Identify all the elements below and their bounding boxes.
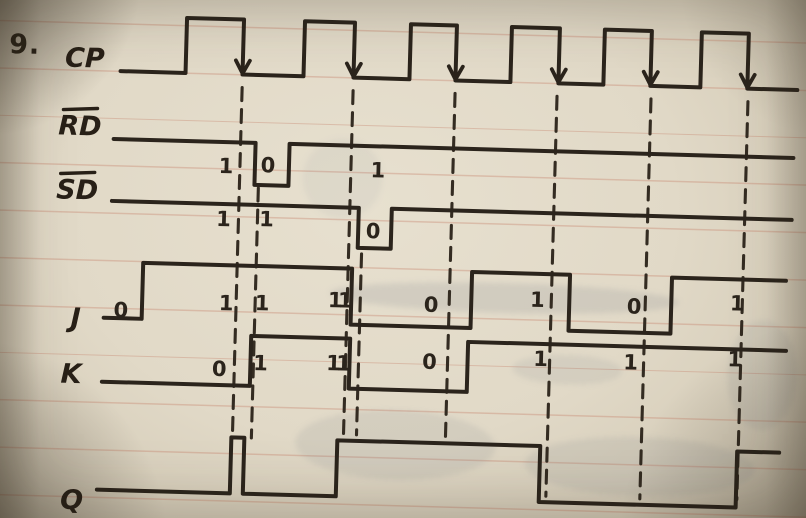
- clock-edge-guide-line: [546, 96, 557, 496]
- notebook-paper: 9. CPRDSDJKQ10111001111010101110111: [0, 0, 806, 518]
- logic-value-digit-rd: 1: [218, 154, 233, 178]
- logic-value-digit-j: 1: [218, 291, 233, 315]
- logic-value-digit-sd: 0: [366, 219, 381, 243]
- clock-edge-guide-line: [356, 254, 361, 435]
- signal-label-rd: RD: [58, 110, 102, 142]
- signal-label-k: K: [60, 359, 84, 391]
- logic-value-digit-sd: 1: [216, 207, 231, 231]
- logic-value-digit-j: 0: [113, 298, 128, 322]
- logic-value-digit-k: 1: [336, 351, 351, 375]
- logic-value-digit-rd: 1: [370, 158, 385, 182]
- signal-label-q: Q: [60, 485, 84, 517]
- logic-value-digit-k: 1: [727, 347, 742, 371]
- overline-mark: [63, 108, 97, 111]
- notebook-photo: 9. CPRDSDJKQ10111001111010101110111: [0, 0, 806, 518]
- logic-value-digit-j: 1: [254, 291, 269, 315]
- logic-value-digit-j: 1: [530, 288, 545, 312]
- logic-value-digit-sd: 1: [259, 207, 274, 231]
- timing-diagram: CPRDSDJKQ10111001111010101110111: [0, 1, 806, 518]
- logic-value-digit-j: 1: [730, 291, 745, 315]
- logic-value-digit-k: 1: [623, 350, 638, 374]
- logic-value-digit-k: 1: [533, 347, 548, 371]
- logic-value-digit-k: 0: [422, 350, 437, 374]
- signal-label-j: J: [65, 303, 81, 334]
- signal-label-cp: CP: [65, 43, 106, 75]
- logic-value-digit-k: 0: [212, 357, 227, 381]
- logic-value-digit-rd: 0: [260, 153, 275, 177]
- logic-value-digit-j: 1: [338, 288, 353, 312]
- signal-cp-waveform: [121, 16, 799, 90]
- logic-value-digit-j: 0: [424, 293, 439, 317]
- clock-edge-guide-line: [445, 93, 455, 437]
- signal-k-waveform: [102, 332, 786, 401]
- logic-value-digit-j: 0: [627, 294, 642, 318]
- signal-q-waveform: [97, 434, 779, 509]
- overline-mark: [61, 171, 95, 174]
- signal-label-sd: SD: [56, 174, 99, 206]
- signal-j-waveform: [104, 262, 786, 337]
- logic-value-digit-k: 1: [253, 351, 268, 375]
